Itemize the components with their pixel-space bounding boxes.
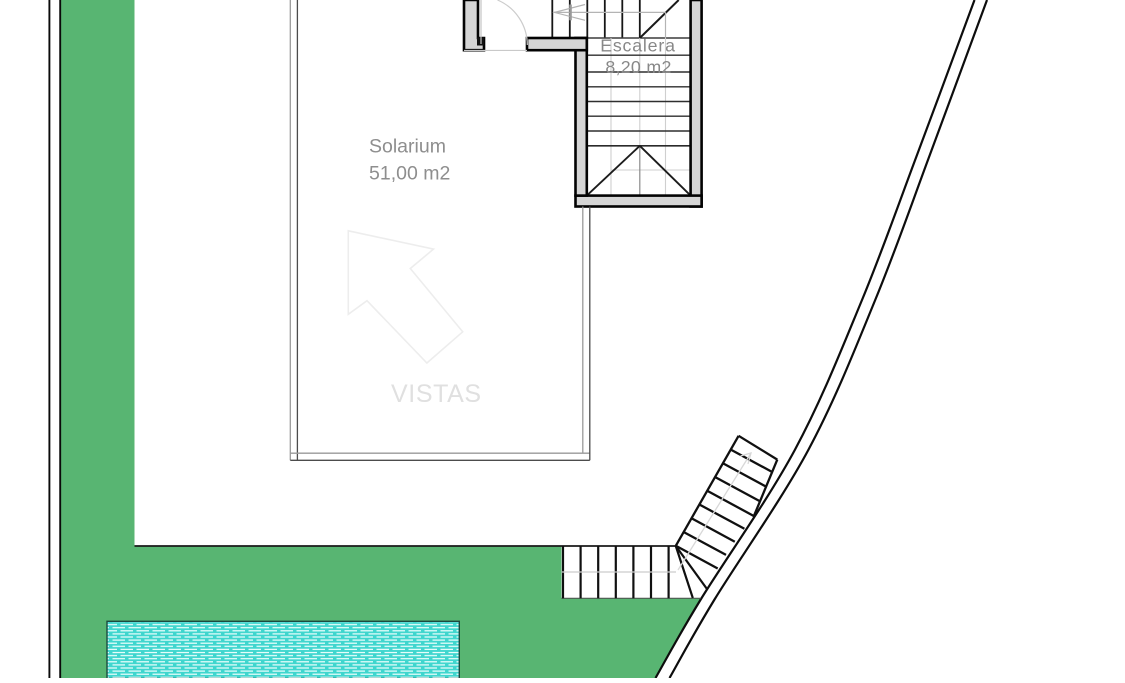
svg-text:Solarium: Solarium [369,136,446,158]
svg-text:Escalera: Escalera [600,36,676,56]
svg-text:VISTAS: VISTAS [391,380,482,408]
svg-text:51,00 m2: 51,00 m2 [369,163,450,185]
svg-text:8,20 m2: 8,20 m2 [605,57,671,77]
